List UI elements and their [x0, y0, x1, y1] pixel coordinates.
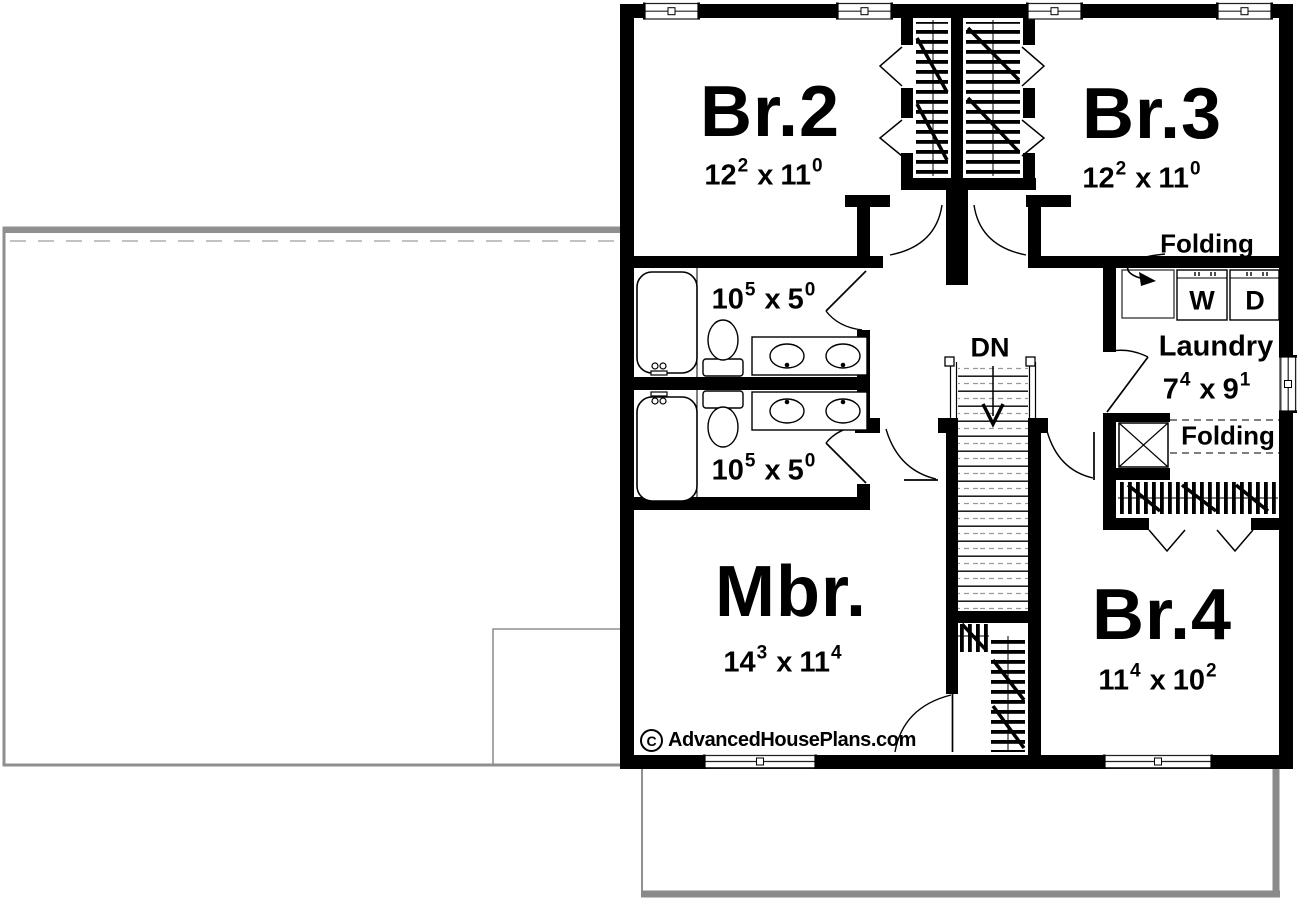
dim-sup: 0: [812, 156, 823, 178]
vanity-upper: [752, 337, 867, 375]
stairs-down-label: DN: [971, 333, 1010, 364]
room-dim-bath-lower: 105x50: [712, 455, 825, 488]
floor-plan-page: Br.2 122x110 Br.3 122x110 Mbr. 143x114 B…: [0, 0, 1300, 901]
dim-sup: 2: [1116, 159, 1127, 181]
dim-sup: 0: [805, 280, 816, 302]
dim-sep: x: [757, 160, 773, 193]
dim-sup: 2: [1206, 661, 1217, 683]
dim-value: 11: [1158, 163, 1189, 196]
dim-sep: x: [1199, 374, 1215, 407]
dim-value: 14: [723, 647, 755, 680]
folding-label-lower: Folding: [1181, 421, 1275, 452]
dim-sup: 4: [831, 643, 842, 665]
dim-sep: x: [764, 455, 780, 488]
dim-sup: 0: [1190, 159, 1201, 181]
dim-value: 10: [712, 455, 744, 488]
stairs: [945, 357, 1036, 611]
chase-box: [1119, 423, 1168, 467]
dim-value: 11: [799, 647, 830, 680]
dim-value: 5: [788, 284, 804, 317]
room-label-mbr: Mbr.: [715, 551, 867, 633]
dim-sup: 1: [1240, 370, 1251, 392]
room-dim-br2: 122x110: [704, 160, 831, 193]
room-dim-bath-upper: 105x50: [712, 284, 825, 317]
dim-value: 5: [788, 455, 804, 488]
dim-sup: 4: [1130, 661, 1141, 683]
watermark-text: AdvancedHousePlans.com: [668, 729, 916, 752]
dim-sep: x: [776, 647, 792, 680]
dim-value: 10: [1173, 665, 1205, 698]
closet-br4-rod: [1118, 482, 1278, 514]
washer-label: W: [1189, 286, 1214, 317]
room-dim-br3: 122x110: [1082, 163, 1209, 196]
window-laundry: [1280, 355, 1298, 413]
dryer-label: D: [1245, 286, 1265, 317]
tub-upper: [637, 272, 697, 373]
dim-sup: 0: [805, 451, 816, 473]
dim-value: 12: [704, 160, 736, 193]
folding-label-upper: Folding: [1160, 229, 1254, 260]
dim-value: 7: [1163, 374, 1179, 407]
room-dim-mbr: 143x114: [723, 647, 850, 680]
dim-value: 11: [780, 160, 811, 193]
dim-sup: 5: [745, 451, 756, 473]
dim-sup: 5: [745, 280, 756, 302]
window-mbr: [703, 755, 817, 769]
room-label-br3: Br.3: [1082, 73, 1222, 155]
room-label-br2: Br.2: [700, 71, 840, 153]
closet-br2-rod: [916, 20, 948, 176]
dim-value: 10: [712, 284, 744, 317]
tub-lower: [637, 397, 697, 501]
dim-value: 9: [1223, 374, 1239, 407]
dim-sep: x: [1135, 163, 1151, 196]
window-br2-left: [643, 3, 700, 20]
copyright-icon: C: [640, 729, 663, 752]
roof-outline-bottom: [641, 766, 1280, 896]
dim-sup: 2: [738, 156, 749, 178]
dim-value: 12: [1082, 163, 1114, 196]
room-label-br4: Br.4: [1092, 574, 1232, 656]
room-dim-br4: 114x102: [1098, 665, 1225, 698]
newel-post-left: [945, 357, 954, 366]
room-dim-laundry: 74x91: [1163, 374, 1260, 407]
dim-sep: x: [764, 284, 780, 317]
dim-value: 11: [1098, 665, 1129, 698]
closet-br3-rod: [966, 20, 1020, 176]
watermark: C AdvancedHousePlans.com: [640, 729, 916, 752]
newel-post-right: [1026, 357, 1035, 366]
window-br2-right: [836, 3, 893, 20]
window-br4: [1103, 755, 1213, 769]
dim-sep: x: [1150, 665, 1166, 698]
room-label-laundry: Laundry: [1159, 331, 1273, 364]
window-br3-right: [1216, 3, 1273, 20]
vanity-lower: [752, 392, 867, 430]
dim-sup: 3: [757, 643, 768, 665]
dim-sup: 4: [1180, 370, 1191, 392]
window-br3-left: [1026, 3, 1083, 20]
roof-outline-left: [3, 228, 626, 765]
